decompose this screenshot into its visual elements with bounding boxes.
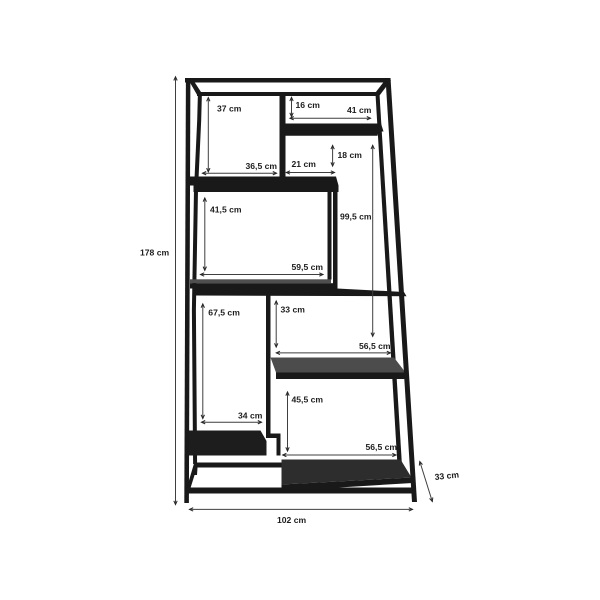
svg-text:36,5 cm: 36,5 cm (246, 161, 278, 171)
svg-text:59,5 cm: 59,5 cm (292, 262, 324, 272)
svg-text:56,5 cm: 56,5 cm (359, 341, 391, 351)
svg-text:21 cm: 21 cm (292, 159, 317, 169)
svg-text:18 cm: 18 cm (338, 150, 363, 160)
svg-text:178 cm: 178 cm (140, 248, 170, 258)
svg-text:56,5 cm: 56,5 cm (366, 442, 398, 452)
svg-text:41,5 cm: 41,5 cm (210, 205, 242, 215)
svg-text:41 cm: 41 cm (347, 105, 372, 115)
svg-text:45,5 cm: 45,5 cm (292, 395, 324, 405)
svg-text:33 cm: 33 cm (281, 305, 306, 315)
svg-text:16 cm: 16 cm (296, 100, 321, 110)
svg-text:102 cm: 102 cm (277, 515, 307, 525)
svg-text:99,5 cm: 99,5 cm (340, 212, 372, 222)
svg-text:67,5 cm: 67,5 cm (208, 308, 240, 318)
svg-text:34 cm: 34 cm (238, 411, 263, 421)
svg-text:37 cm: 37 cm (217, 103, 242, 113)
